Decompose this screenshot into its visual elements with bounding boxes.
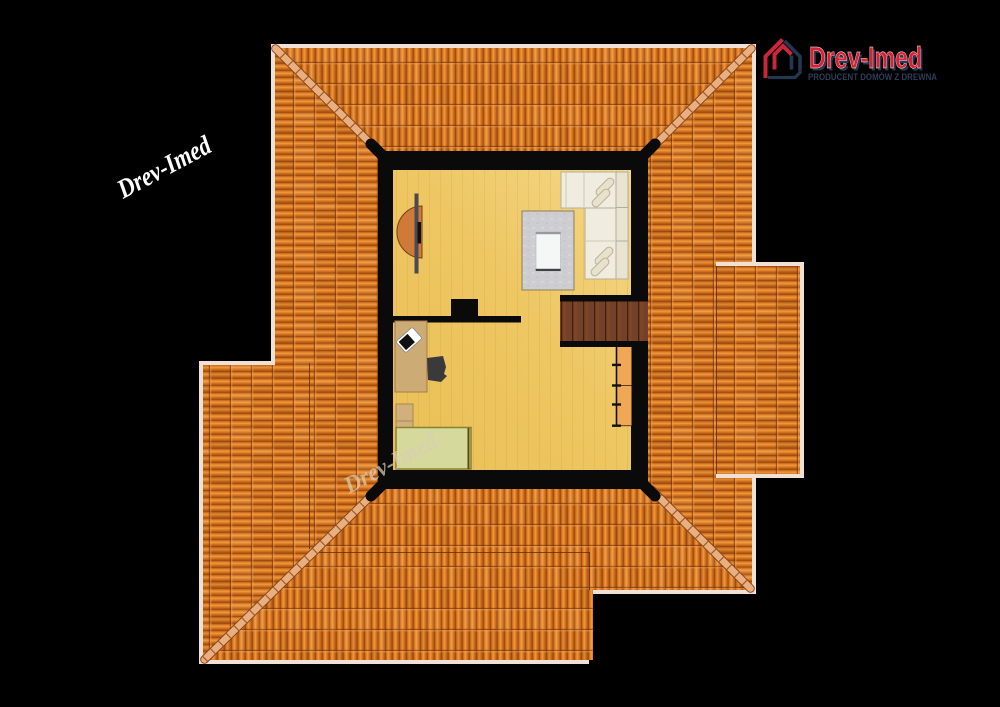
svg-text:Drev-Imed: Drev-Imed (809, 40, 922, 75)
svg-text:PRODUCENT DOMÓW Z DREWNA: PRODUCENT DOMÓW Z DREWNA (808, 71, 937, 82)
